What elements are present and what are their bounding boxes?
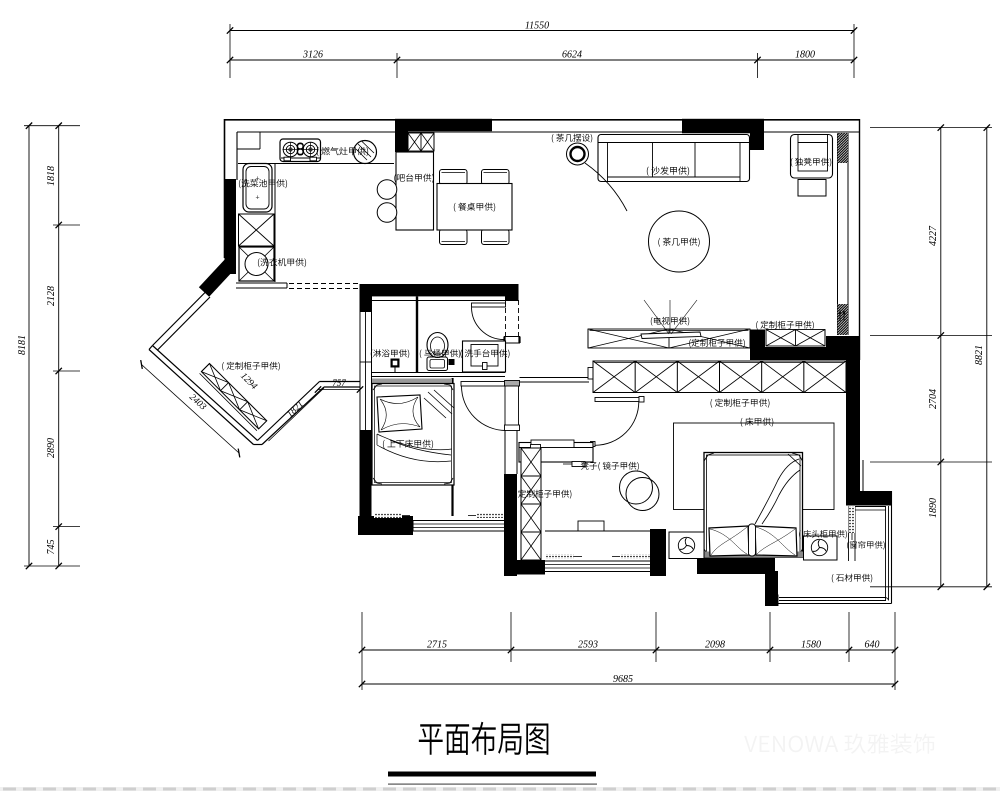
svg-text:2098: 2098 [705,640,725,651]
svg-text:9685: 9685 [613,674,633,685]
svg-text:8821: 8821 [974,345,985,365]
svg-text:8181: 8181 [17,335,28,355]
svg-text:4227: 4227 [928,225,939,246]
svg-text:745: 745 [46,540,57,555]
svg-text:6624: 6624 [562,50,582,61]
svg-text:2715: 2715 [427,640,447,651]
svg-text:11550: 11550 [525,21,549,32]
svg-text:1890: 1890 [928,498,939,518]
svg-text:2704: 2704 [928,389,939,409]
svg-text:757: 757 [332,378,346,388]
svg-text:2890: 2890 [46,438,57,458]
svg-text:1818: 1818 [46,166,57,186]
svg-text:2128: 2128 [46,286,57,306]
svg-text:2593: 2593 [578,640,598,651]
svg-text:640: 640 [865,640,880,651]
svg-text:3126: 3126 [302,50,323,61]
svg-text:1580: 1580 [801,640,821,651]
svg-text:+: + [255,195,259,202]
svg-text:1800: 1800 [795,50,815,61]
